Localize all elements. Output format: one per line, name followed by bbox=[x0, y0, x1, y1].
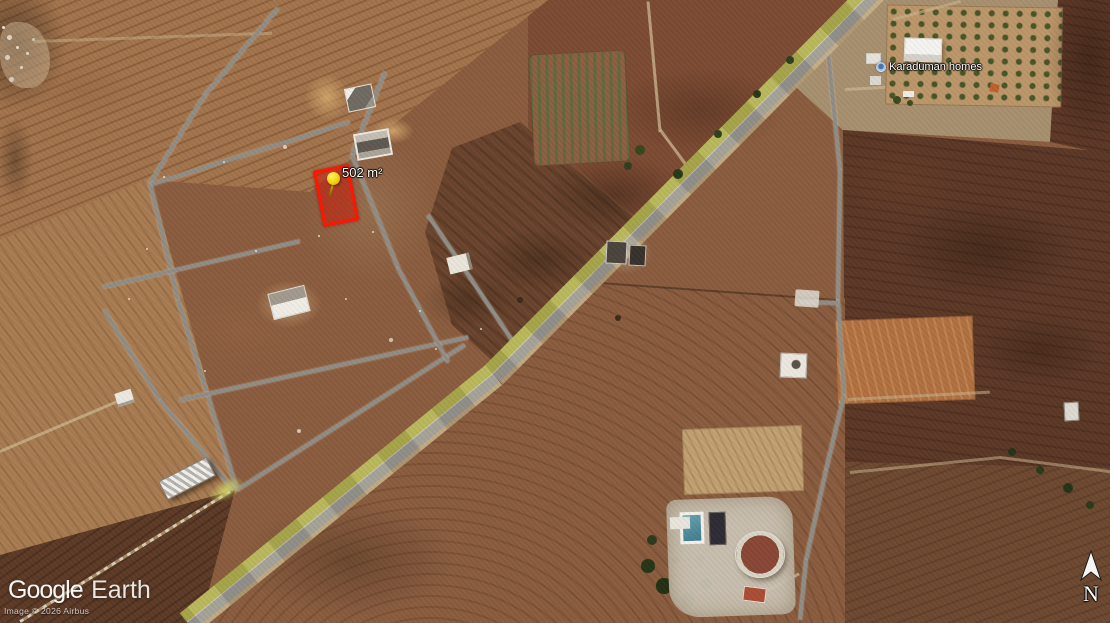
compass-north-label: N bbox=[1083, 581, 1099, 606]
grain-texture bbox=[0, 0, 1110, 623]
north-arrow-icon bbox=[1077, 550, 1105, 582]
place-label[interactable]: Karaduman homes bbox=[889, 61, 982, 74]
pushpin-head bbox=[327, 172, 340, 185]
logo-earth: Earth bbox=[91, 576, 151, 604]
place-dot-icon[interactable] bbox=[876, 62, 886, 72]
logo-google: Google bbox=[8, 576, 83, 604]
google-earth-logo: Google Earth bbox=[8, 576, 151, 605]
attribution-text: Image © 2026 Airbus bbox=[4, 606, 89, 616]
pushpin-needle bbox=[328, 185, 333, 197]
parcel-area-label: 502 m² bbox=[342, 166, 382, 180]
satellite-map[interactable]: 502 m² Karaduman homes Google Earth Imag… bbox=[0, 0, 1110, 623]
compass[interactable]: N bbox=[1076, 550, 1106, 612]
